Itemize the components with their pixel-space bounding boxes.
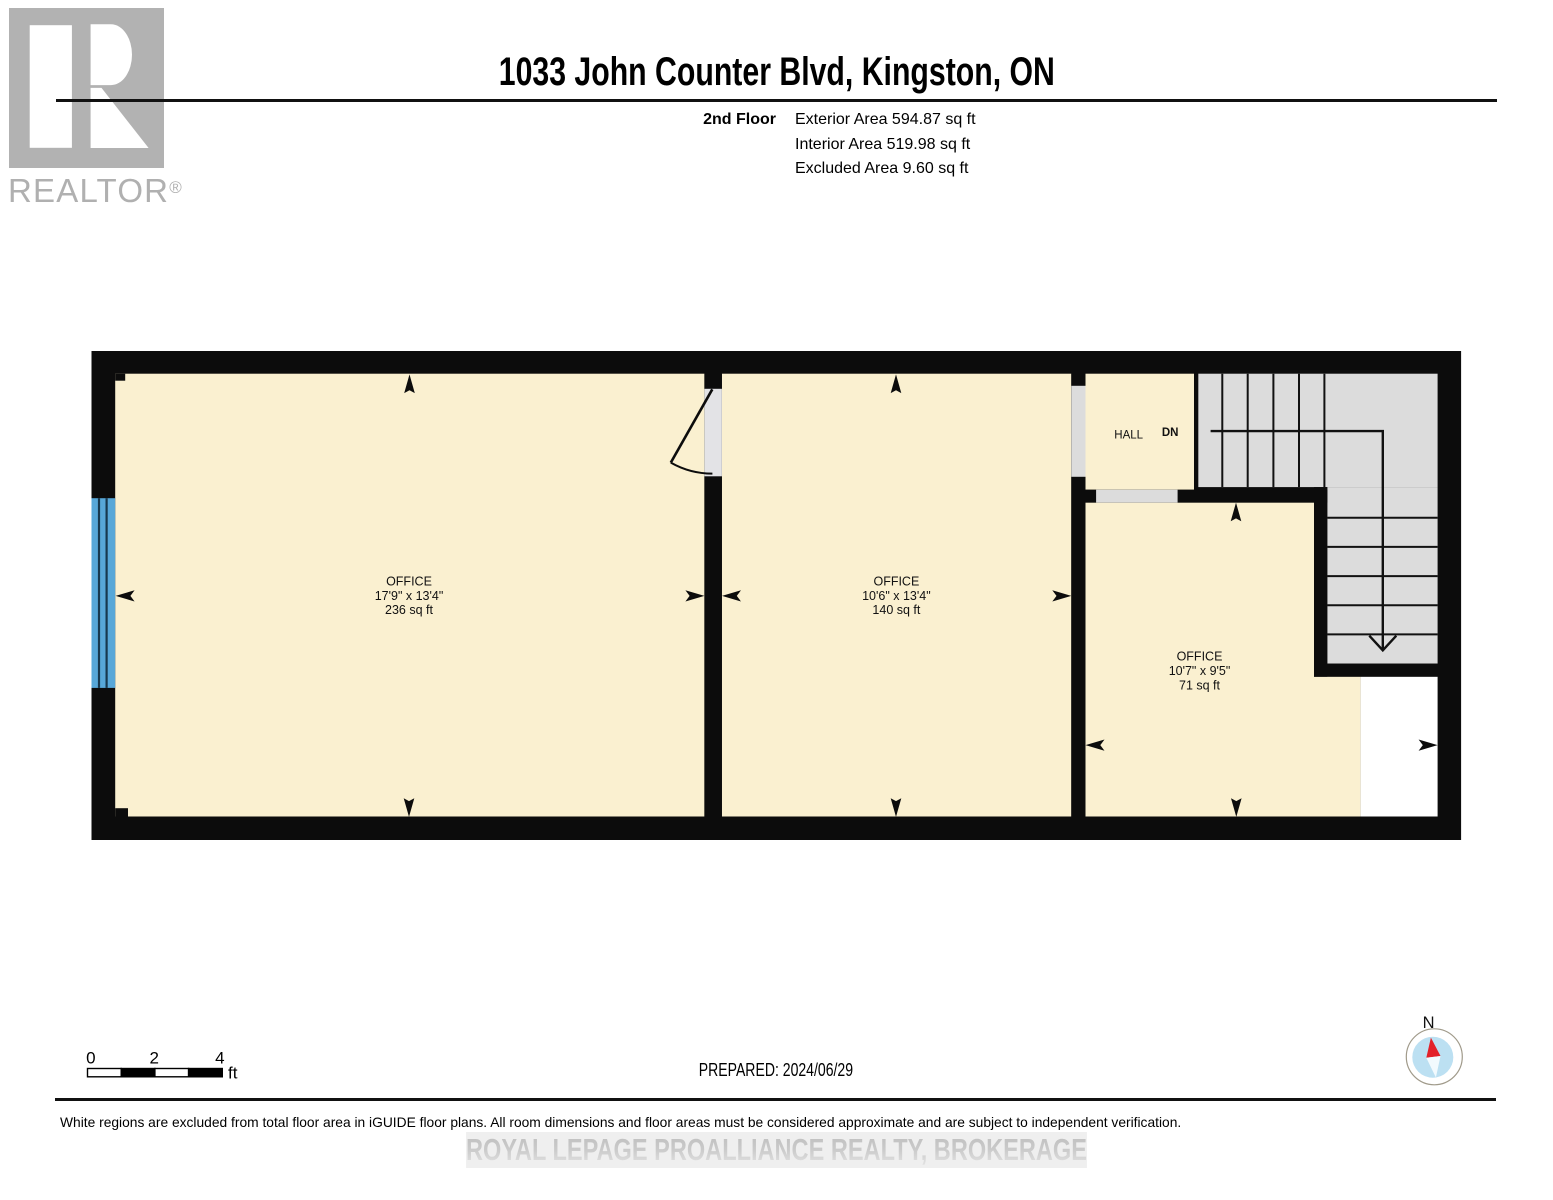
svg-text:140 sq ft: 140 sq ft [872,603,920,617]
svg-text:10'7" x 9'5": 10'7" x 9'5" [1169,664,1231,678]
svg-text:N: N [1423,1014,1435,1032]
svg-text:OFFICE: OFFICE [873,575,919,589]
svg-text:DN: DN [1162,427,1179,439]
svg-text:OFFICE: OFFICE [386,575,432,589]
svg-text:HALL: HALL [1114,429,1143,441]
svg-text:OFFICE: OFFICE [1177,649,1223,663]
svg-text:17'9" x 13'4": 17'9" x 13'4" [375,589,444,603]
svg-text:10'6" x 13'4": 10'6" x 13'4" [862,589,931,603]
svg-text:236 sq ft: 236 sq ft [385,603,433,617]
svg-text:71 sq ft: 71 sq ft [1179,678,1221,692]
